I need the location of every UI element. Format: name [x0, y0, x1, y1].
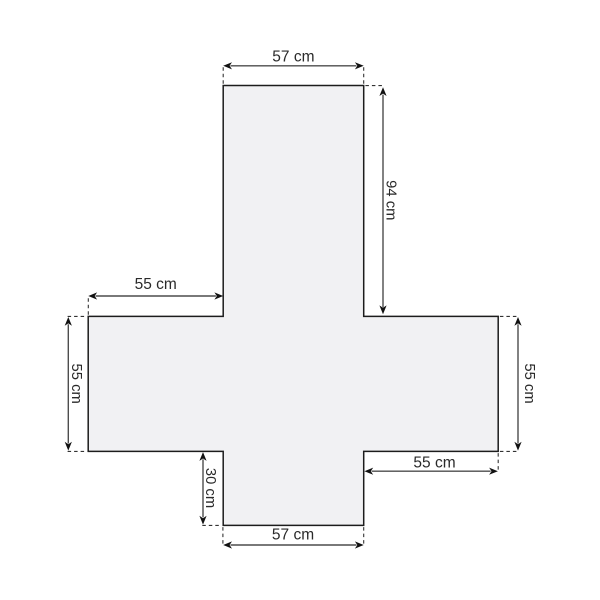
svg-text:55 cm: 55 cm [135, 276, 177, 293]
svg-text:94 cm: 94 cm [383, 180, 399, 220]
svg-text:55 cm: 55 cm [68, 364, 84, 404]
svg-text:57 cm: 57 cm [272, 49, 314, 66]
svg-text:30 cm: 30 cm [202, 468, 218, 508]
svg-text:57 cm: 57 cm [272, 527, 314, 544]
svg-text:55 cm: 55 cm [521, 363, 537, 403]
svg-text:55 cm: 55 cm [413, 454, 455, 471]
